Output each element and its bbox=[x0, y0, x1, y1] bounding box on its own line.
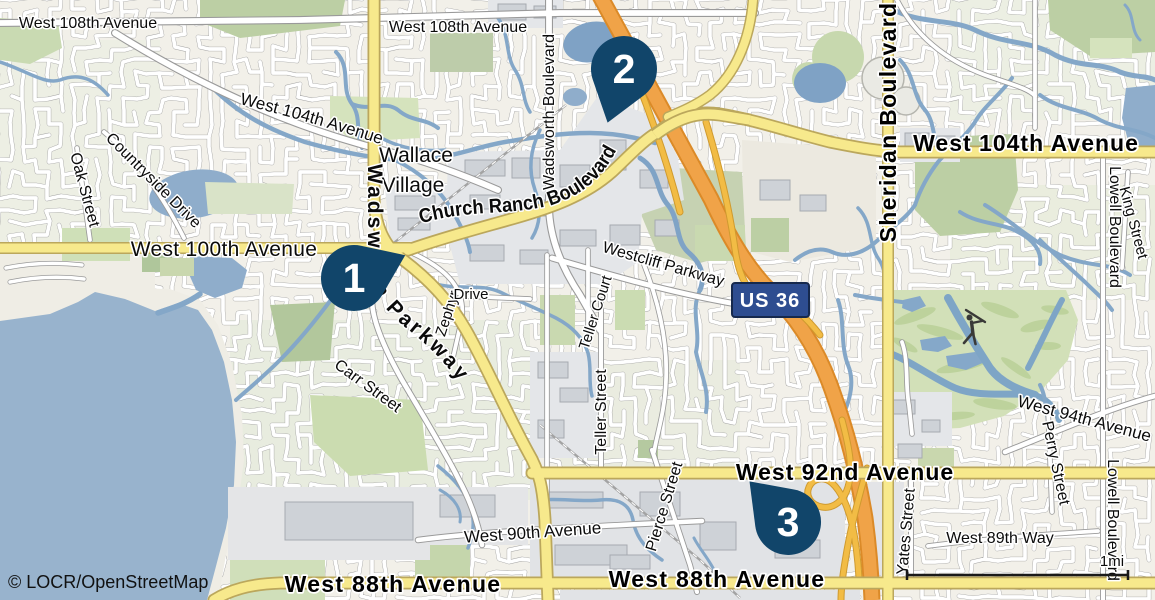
svg-text:Village: Village bbox=[382, 174, 445, 197]
svg-text:2: 2 bbox=[613, 46, 636, 92]
svg-text:West 88th Avenue: West 88th Avenue bbox=[285, 571, 502, 597]
svg-text:West 108th Avenue: West 108th Avenue bbox=[19, 15, 157, 32]
svg-text:1mi: 1mi bbox=[1100, 553, 1124, 570]
svg-text:3: 3 bbox=[777, 499, 800, 545]
svg-text:Sheridan Boulevard: Sheridan Boulevard bbox=[875, 2, 901, 243]
svg-text:US 36: US 36 bbox=[740, 290, 801, 312]
svg-text:Drive: Drive bbox=[453, 286, 488, 303]
svg-text:West 89th Way: West 89th Way bbox=[946, 530, 1054, 547]
svg-text:Lowell Boulevard: Lowell Boulevard bbox=[1106, 166, 1123, 288]
svg-text:Wallace: Wallace bbox=[379, 144, 453, 167]
svg-text:Wadsworth Boulevard: Wadsworth Boulevard bbox=[541, 34, 558, 190]
svg-text:West 92nd Avenue: West 92nd Avenue bbox=[736, 459, 954, 485]
svg-text:1: 1 bbox=[343, 255, 366, 301]
svg-text:West 88th Avenue: West 88th Avenue bbox=[609, 566, 826, 592]
svg-text:Teller Street: Teller Street bbox=[593, 369, 610, 455]
svg-text:West 108th Avenue: West 108th Avenue bbox=[389, 19, 527, 36]
svg-text:West 100th Avenue: West 100th Avenue bbox=[131, 238, 317, 261]
svg-text:West 104th Avenue: West 104th Avenue bbox=[913, 130, 1139, 156]
svg-text:© LOCR/OpenStreetMap: © LOCR/OpenStreetMap bbox=[8, 572, 208, 592]
